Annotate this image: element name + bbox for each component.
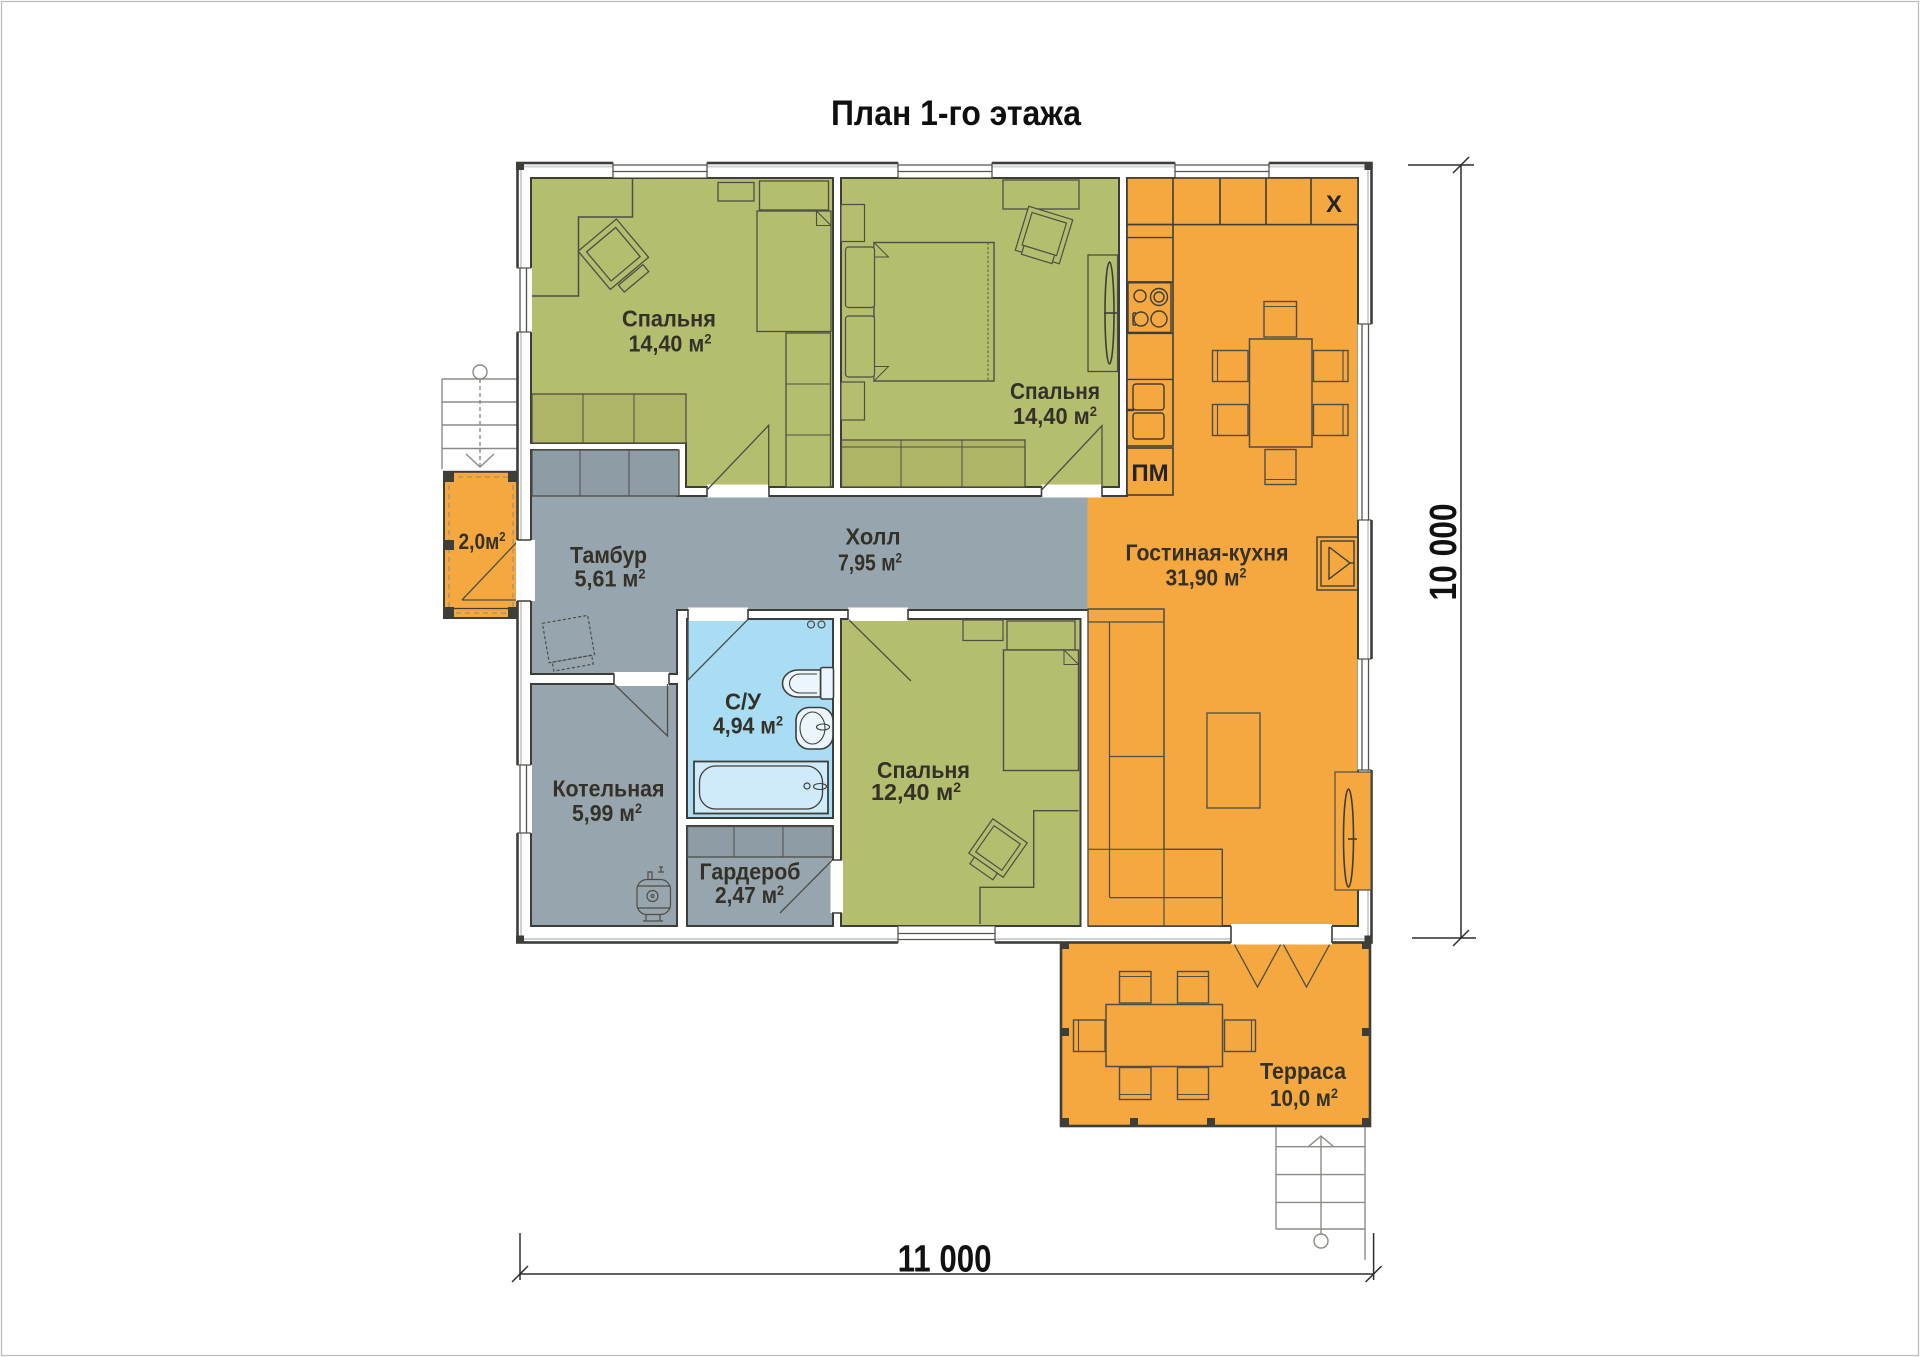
- svg-text:10 000: 10 000: [1423, 504, 1465, 601]
- svg-text:11 000: 11 000: [898, 1239, 992, 1281]
- svg-text:Гостиная-кухня: Гостиная-кухня: [1126, 540, 1289, 566]
- svg-text:4,94 м2: 4,94 м2: [713, 713, 783, 739]
- svg-text:План 1-го этажа: План 1-го этажа: [831, 94, 1081, 133]
- svg-text:31,90 м2: 31,90 м2: [1166, 565, 1247, 591]
- svg-text:Спальня: Спальня: [1010, 378, 1100, 404]
- svg-text:7,95 м2: 7,95 м2: [838, 550, 902, 576]
- svg-text:5,61 м2: 5,61 м2: [575, 566, 646, 592]
- svg-text:С/У: С/У: [725, 689, 761, 715]
- svg-text:5,99 м2: 5,99 м2: [572, 800, 642, 826]
- svg-text:14,40 м2: 14,40 м2: [1013, 403, 1097, 429]
- svg-text:2,0м2: 2,0м2: [459, 529, 506, 554]
- svg-text:Холл: Холл: [846, 524, 901, 550]
- svg-text:ПМ: ПМ: [1131, 460, 1168, 487]
- svg-text:12,40 м2: 12,40 м2: [871, 779, 961, 805]
- svg-text:Котельная: Котельная: [553, 776, 665, 802]
- svg-text:Гардероб: Гардероб: [700, 859, 801, 885]
- svg-text:Тамбур: Тамбур: [570, 542, 647, 568]
- svg-text:X: X: [1326, 191, 1342, 218]
- svg-text:2,47 м2: 2,47 м2: [715, 882, 784, 908]
- svg-text:Терраса: Терраса: [1260, 1058, 1346, 1084]
- svg-text:Спальня: Спальня: [622, 306, 716, 332]
- svg-text:10,0 м2: 10,0 м2: [1270, 1085, 1338, 1111]
- svg-text:14,40 м2: 14,40 м2: [629, 331, 712, 357]
